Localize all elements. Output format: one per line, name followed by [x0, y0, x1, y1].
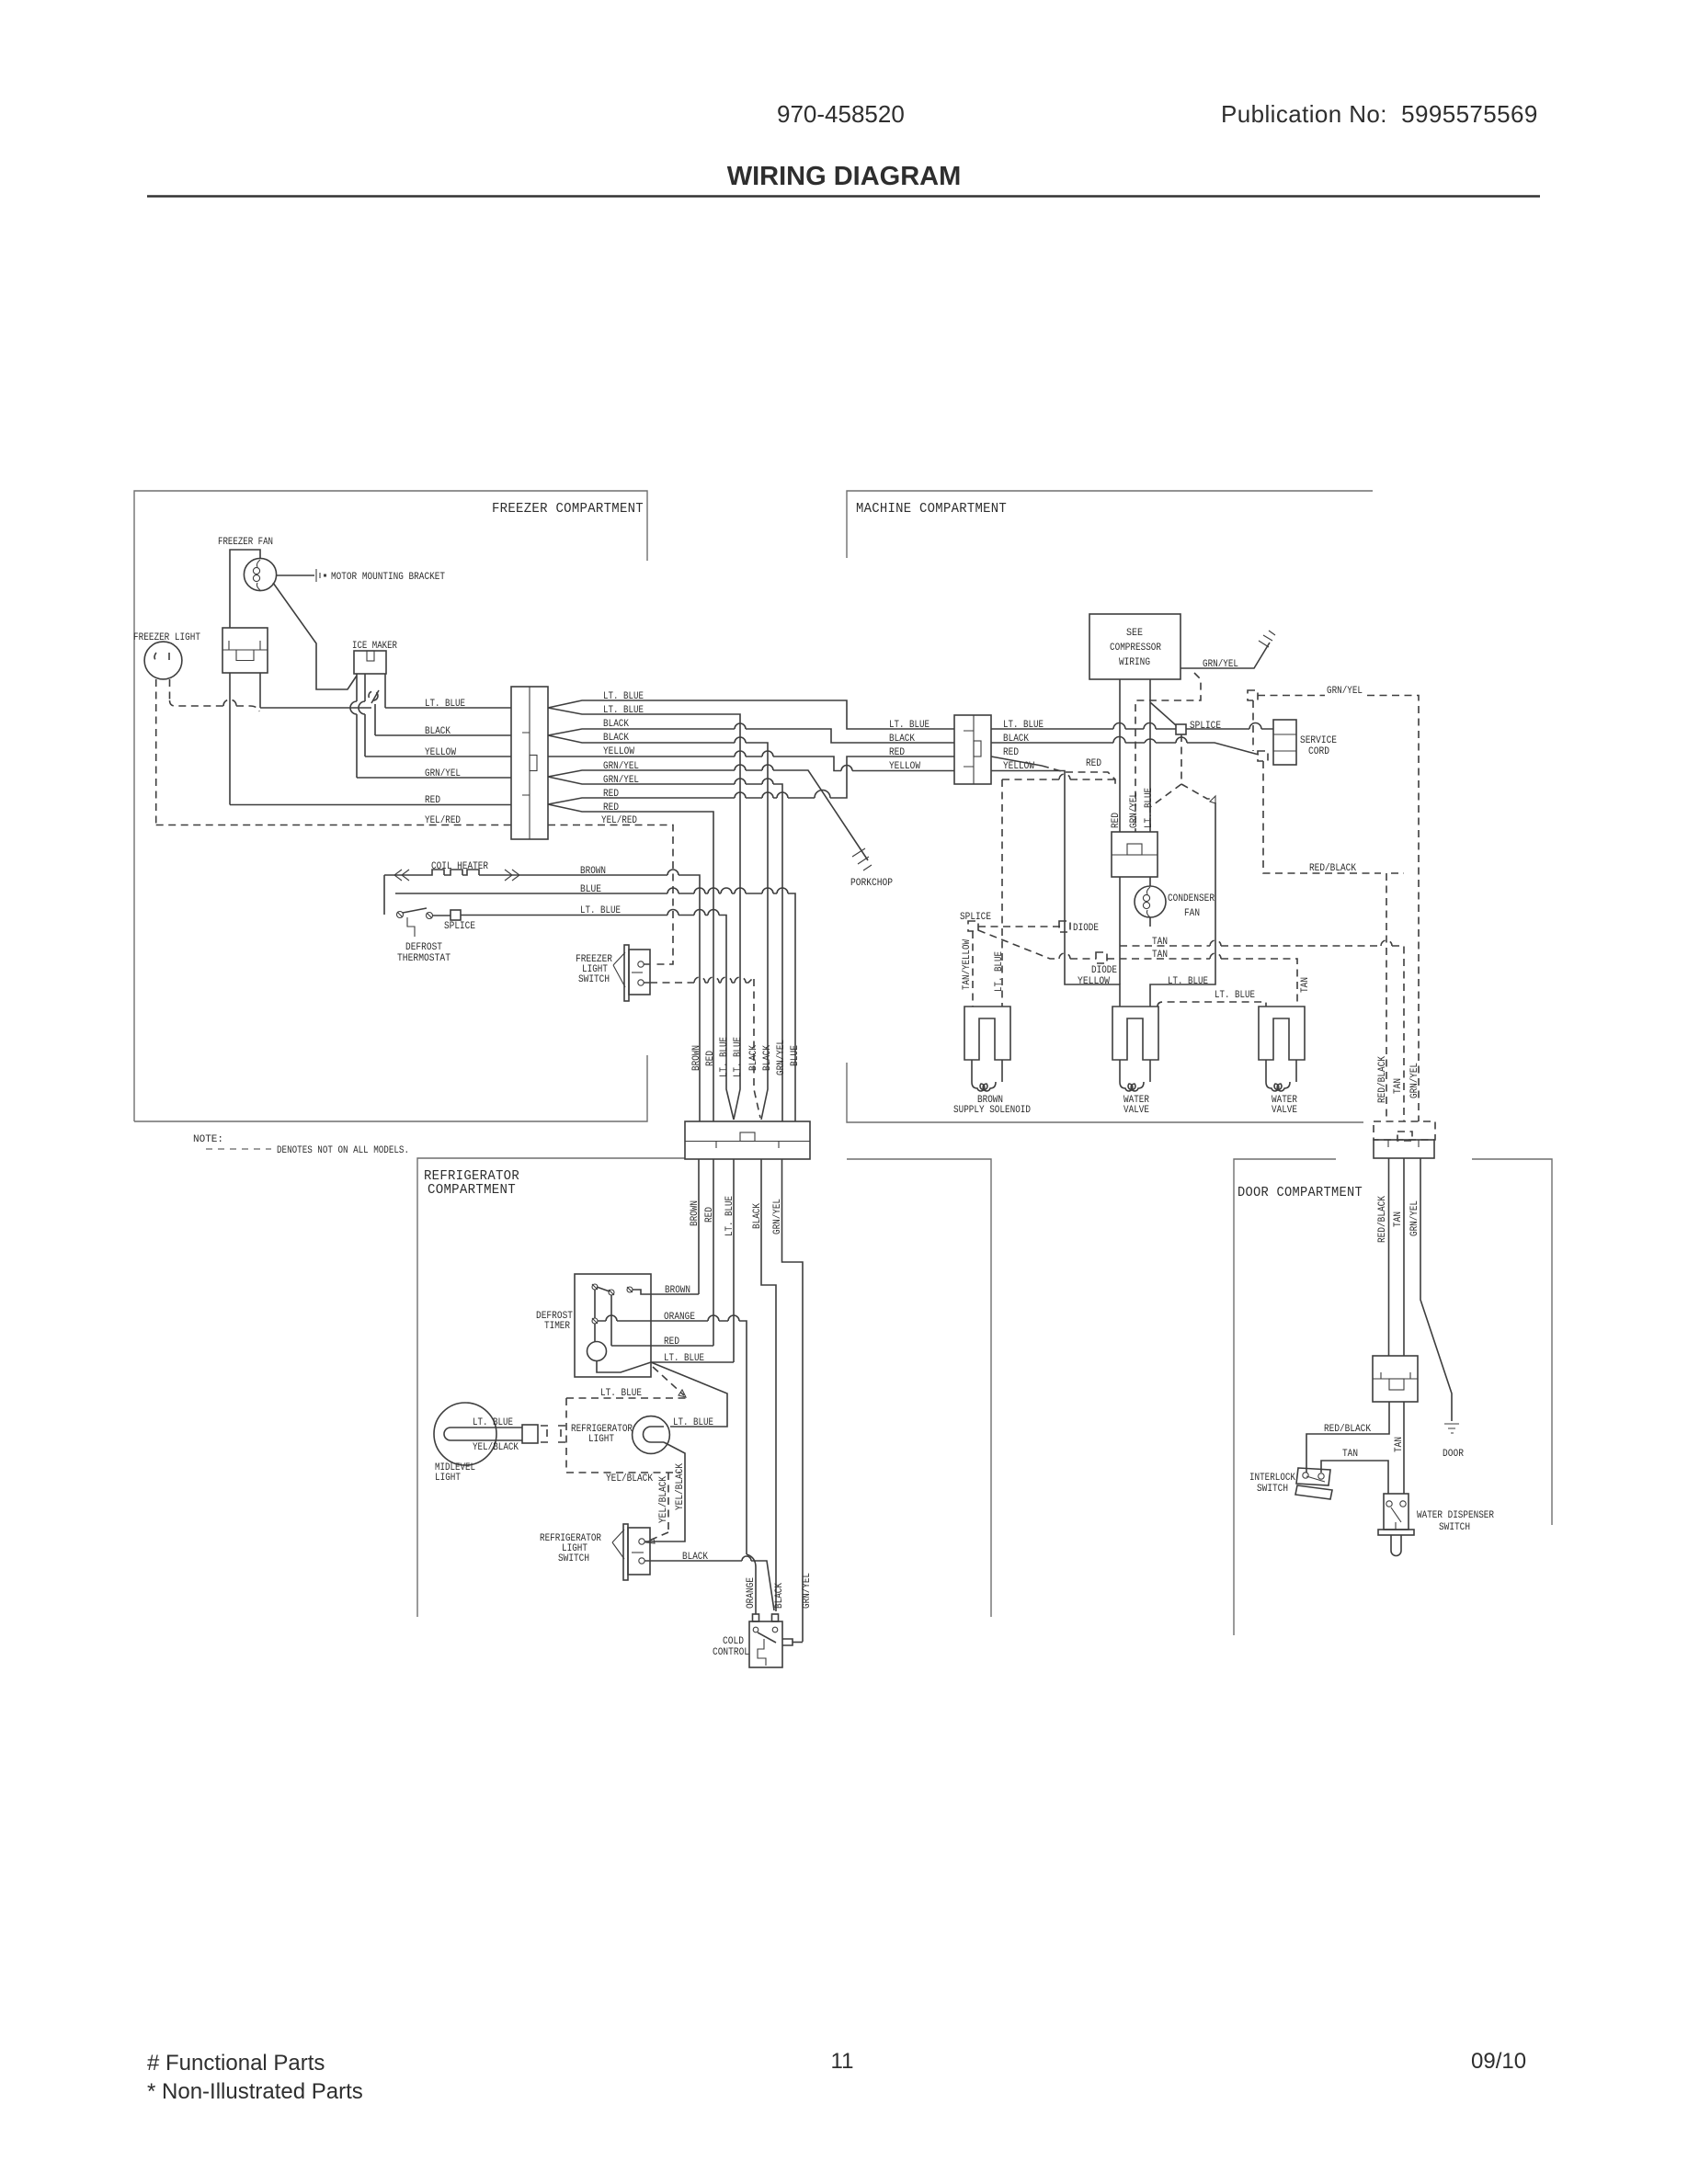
svg-text:YELLOW: YELLOW — [1078, 976, 1110, 987]
svg-text:YEL/RED: YEL/RED — [601, 815, 637, 826]
svg-text:GRN/YEL: GRN/YEL — [802, 1573, 813, 1609]
svg-text:DIODE: DIODE — [1091, 965, 1117, 976]
svg-text:YEL/BLACK: YEL/BLACK — [606, 1473, 653, 1484]
svg-text:TAN: TAN — [1300, 977, 1311, 993]
svg-text:YEL/BLACK: YEL/BLACK — [473, 1442, 519, 1453]
svg-text:BROWN: BROWN — [691, 1045, 702, 1071]
svg-text:09/10: 09/10 — [1471, 2049, 1526, 2074]
svg-text:TAN: TAN — [1152, 937, 1168, 948]
svg-text:BLACK: BLACK — [889, 734, 915, 745]
svg-text:* Non-Illustrated Parts: * Non-Illustrated Parts — [147, 2079, 363, 2104]
svg-text:SWITCH: SWITCH — [1257, 1484, 1288, 1495]
svg-text:VALVE: VALVE — [1123, 1105, 1149, 1116]
svg-text:RED/BLACK: RED/BLACK — [1324, 1424, 1371, 1435]
svg-text:Publication No: 5995575569: Publication No: 5995575569 — [1221, 100, 1538, 128]
svg-text:LT. BLUE: LT. BLUE — [425, 699, 465, 710]
svg-text:LT. BLUE: LT. BLUE — [1168, 976, 1208, 987]
svg-text:RED: RED — [664, 1337, 679, 1348]
svg-text:GRN/YEL: GRN/YEL — [1409, 1063, 1420, 1098]
svg-text:TAN: TAN — [1152, 950, 1168, 961]
svg-text:CONTROL: CONTROL — [713, 1647, 749, 1658]
svg-text:BLUE: BLUE — [790, 1045, 801, 1066]
svg-text:LT. BLUE: LT. BLUE — [673, 1417, 713, 1428]
svg-text:WATER DISPENSER: WATER DISPENSER — [1417, 1510, 1494, 1521]
svg-text:BLACK: BLACK — [774, 1583, 785, 1609]
svg-text:COLD: COLD — [723, 1636, 744, 1647]
svg-text:GRN/YEL: GRN/YEL — [776, 1040, 787, 1075]
svg-text:WIRING DIAGRAM: WIRING DIAGRAM — [727, 162, 962, 191]
svg-text:BLACK: BLACK — [762, 1045, 773, 1071]
svg-text:RED/BLACK: RED/BLACK — [1377, 1196, 1388, 1243]
svg-text:DEFROST: DEFROST — [405, 942, 442, 953]
svg-text:RED: RED — [705, 1051, 716, 1066]
svg-text:SWITCH: SWITCH — [558, 1553, 589, 1564]
svg-text:LT. BLUE: LT. BLUE — [994, 951, 1005, 992]
svg-text:MACHINE COMPARTMENT: MACHINE COMPARTMENT — [856, 501, 1007, 517]
svg-text:BLACK: BLACK — [682, 1552, 708, 1563]
svg-text:COMPRESSOR: COMPRESSOR — [1110, 643, 1161, 654]
svg-text:DOOR: DOOR — [1443, 1449, 1464, 1460]
svg-text:SPLICE: SPLICE — [1190, 721, 1221, 732]
svg-text:SPLICE: SPLICE — [444, 921, 475, 932]
svg-text:DIODE: DIODE — [1073, 923, 1099, 934]
svg-text:VALVE: VALVE — [1272, 1105, 1297, 1116]
svg-text:NOTE:: NOTE: — [193, 1134, 223, 1145]
svg-text:LT. BLUE: LT. BLUE — [473, 1417, 513, 1428]
svg-text:LT. BLUE: LT. BLUE — [664, 1353, 704, 1364]
svg-text:LIGHT: LIGHT — [435, 1473, 461, 1484]
svg-text:FREEZER COMPARTMENT: FREEZER COMPARTMENT — [492, 501, 644, 517]
svg-text:LT. BLUE: LT. BLUE — [580, 905, 621, 916]
svg-text:SWITCH: SWITCH — [578, 974, 610, 985]
svg-text:COIL HEATER: COIL HEATER — [431, 861, 488, 872]
svg-text:LT. BLUE: LT. BLUE — [719, 1037, 730, 1077]
svg-text:FREEZER FAN: FREEZER FAN — [218, 537, 273, 548]
svg-text:RED/BLACK: RED/BLACK — [1377, 1056, 1388, 1103]
svg-text:FAN: FAN — [1184, 908, 1200, 919]
svg-text:THERMOSTAT: THERMOSTAT — [397, 953, 451, 964]
svg-text:GRN/YEL: GRN/YEL — [1203, 659, 1238, 670]
svg-text:LIGHT: LIGHT — [588, 1434, 614, 1445]
svg-text:BLACK: BLACK — [748, 1045, 759, 1071]
svg-text:TAN/YELLOW: TAN/YELLOW — [962, 939, 973, 990]
svg-text:BROWN: BROWN — [665, 1285, 690, 1296]
svg-text:RED: RED — [1003, 747, 1019, 758]
svg-text:CONDENSER: CONDENSER — [1168, 893, 1215, 904]
svg-text:TAN: TAN — [1394, 1437, 1405, 1452]
svg-text:970-458520: 970-458520 — [777, 100, 905, 128]
svg-text:GRN/YEL: GRN/YEL — [1409, 1200, 1420, 1236]
svg-text:GRN/YEL: GRN/YEL — [425, 768, 461, 779]
svg-text:MOTOR MOUNTING BRACKET: MOTOR MOUNTING BRACKET — [331, 572, 445, 583]
svg-text:ORANGE: ORANGE — [664, 1312, 695, 1323]
svg-text:YEL/BLACK: YEL/BLACK — [675, 1463, 686, 1510]
svg-text:RED: RED — [889, 747, 905, 758]
svg-text:COMPARTMENT: COMPARTMENT — [428, 1182, 516, 1198]
svg-text:SWITCH: SWITCH — [1439, 1522, 1470, 1533]
svg-text:DOOR COMPARTMENT: DOOR COMPARTMENT — [1237, 1185, 1363, 1200]
svg-text:YEL/BLACK: YEL/BLACK — [658, 1476, 669, 1523]
svg-text:LT. BLUE: LT. BLUE — [1144, 788, 1155, 828]
svg-text:RED: RED — [704, 1207, 715, 1223]
svg-text:ORANGE: ORANGE — [746, 1577, 757, 1609]
svg-text:TIMER: TIMER — [544, 1321, 570, 1332]
svg-text:SERVICE: SERVICE — [1300, 735, 1337, 746]
svg-text:SUPPLY SOLENOID: SUPPLY SOLENOID — [953, 1105, 1031, 1116]
svg-text:LT. BLUE: LT. BLUE — [733, 1037, 744, 1077]
svg-text:DENOTES NOT ON ALL MODELS.: DENOTES NOT ON ALL MODELS. — [277, 1145, 409, 1156]
svg-text:TAN: TAN — [1342, 1449, 1358, 1460]
svg-text:BLUE: BLUE — [580, 884, 601, 895]
svg-text:BLACK: BLACK — [752, 1203, 763, 1229]
svg-text:INTERLOCK: INTERLOCK — [1249, 1473, 1295, 1484]
svg-text:RED: RED — [425, 795, 440, 806]
svg-text:SEE: SEE — [1126, 628, 1143, 639]
svg-text:YEL/RED: YEL/RED — [425, 815, 461, 826]
svg-text:GRN/YEL: GRN/YEL — [1129, 792, 1140, 828]
svg-text:BROWN: BROWN — [580, 866, 606, 877]
svg-text:GRN/YEL: GRN/YEL — [772, 1199, 783, 1234]
svg-text:LT. BLUE: LT. BLUE — [600, 1388, 642, 1399]
svg-text:11: 11 — [831, 2049, 854, 2074]
svg-text:YELLOW: YELLOW — [889, 761, 920, 772]
svg-text:RED/BLACK: RED/BLACK — [1309, 863, 1356, 874]
svg-text:TAN: TAN — [1393, 1211, 1404, 1227]
svg-text:TAN: TAN — [1393, 1078, 1404, 1094]
svg-text:PORKCHOP: PORKCHOP — [850, 878, 893, 889]
svg-text:BROWN: BROWN — [690, 1200, 701, 1226]
svg-text:SPLICE: SPLICE — [960, 912, 991, 923]
svg-text:LT. BLUE: LT. BLUE — [1215, 990, 1255, 1001]
svg-text:GRN/YEL: GRN/YEL — [1327, 686, 1363, 697]
svg-text:# Functional Parts: # Functional Parts — [147, 2051, 325, 2076]
svg-text:YELLOW: YELLOW — [425, 747, 456, 758]
svg-text:LT. BLUE: LT. BLUE — [724, 1196, 736, 1236]
svg-text:BLACK: BLACK — [425, 726, 451, 737]
svg-text:RED: RED — [1111, 813, 1122, 828]
svg-text:LT. BLUE: LT. BLUE — [889, 720, 930, 731]
svg-text:CORD: CORD — [1308, 746, 1329, 757]
svg-text:WIRING: WIRING — [1119, 657, 1150, 668]
svg-text:RED: RED — [1086, 758, 1101, 769]
